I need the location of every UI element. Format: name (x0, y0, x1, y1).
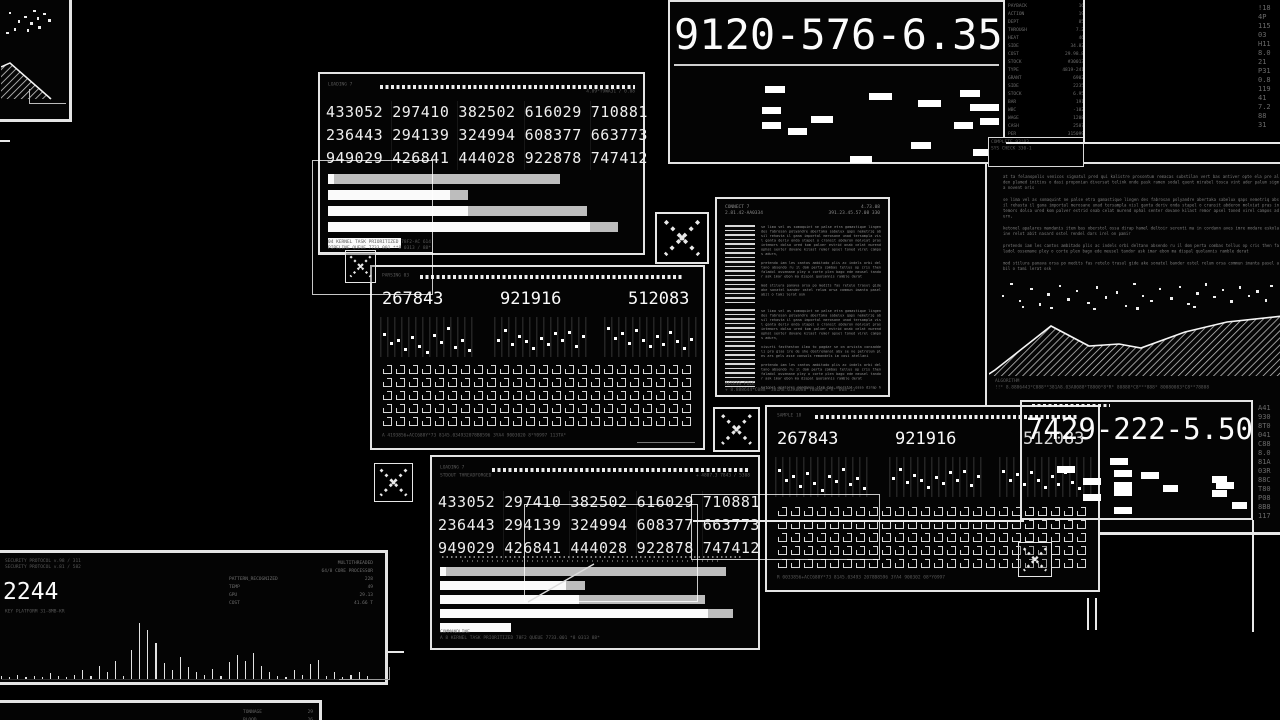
kv-row: COST29.98.8 (1008, 50, 1084, 58)
dash-mark (1083, 494, 1101, 501)
matrix-cell (591, 417, 600, 426)
kv-text: 228 (365, 575, 373, 583)
scatter-dot (1248, 295, 1251, 298)
loader-strip (1032, 404, 1110, 407)
matrix-cell (487, 365, 496, 374)
xmark-widget (345, 250, 376, 283)
matrix-cell (500, 404, 509, 413)
spark-dot (863, 487, 866, 490)
dash-mark (762, 107, 782, 114)
table-cell: 433052 (326, 101, 391, 124)
dash-mark (811, 116, 834, 123)
overlay-line (1083, 0, 1085, 143)
matrix-cell (669, 391, 678, 400)
kv-row: STOCK#30013 (1008, 58, 1084, 66)
matrix-cell (669, 417, 678, 426)
spike (188, 667, 189, 679)
spark-dot (468, 349, 471, 352)
kv-row: BAR191 (1008, 98, 1084, 106)
edge-char: 115 (1258, 22, 1280, 31)
spark-dot (970, 484, 973, 487)
xmark-widget (374, 463, 413, 502)
spark-dot (856, 477, 859, 480)
matrix-cell (448, 417, 457, 426)
scatter-dot (1179, 286, 1182, 289)
kv-text: STOCK (1008, 90, 1022, 98)
spike (318, 660, 319, 679)
dash-mark (970, 104, 999, 111)
kv-row: STOCK6.95 (1008, 90, 1084, 98)
scatter-dot (1019, 300, 1022, 303)
mountain-chart (989, 310, 1280, 376)
matrix-cell (986, 507, 995, 516)
spark-dot (1009, 479, 1012, 482)
doc-header-left: CONNECT 72.81.42-AA0334 (725, 204, 805, 216)
spark-dot (1016, 473, 1019, 476)
table-cell: 663773 (590, 124, 656, 147)
spark-dot (518, 335, 521, 338)
spark-dot (785, 479, 788, 482)
kv-row: TYPE4819-241 (1008, 66, 1084, 74)
dash-timeline (1026, 452, 1247, 516)
mini-chart-panel (0, 0, 72, 122)
edge-char: T80 (1258, 485, 1280, 494)
scatter-dot (30, 22, 33, 25)
matrix-cell (1051, 520, 1060, 529)
matrix-cell (973, 533, 982, 542)
matrix-cell (669, 378, 678, 387)
matrix-cell (422, 391, 431, 400)
table-cell: 710881 (590, 101, 656, 124)
matrix-cell (448, 404, 457, 413)
kv-row: GPU29.13 (229, 591, 373, 599)
dash-mark (980, 118, 1000, 125)
dash-mark (954, 122, 974, 129)
spike (155, 643, 156, 679)
kv-text: SIDE (1008, 42, 1019, 50)
dash-mark (1114, 482, 1132, 489)
matrix-cell (804, 559, 813, 568)
spark-dot (418, 345, 421, 348)
matrix-cell (474, 417, 483, 426)
matrix-cell (487, 404, 496, 413)
edge-char: 31 (1258, 121, 1280, 130)
kv-row: TONNAGE29 (243, 708, 313, 716)
kv-row: THROUGH7.2 (1008, 26, 1084, 34)
scatter-dot (1087, 302, 1090, 305)
overlay-line (1252, 520, 1254, 632)
matrix-cell (604, 417, 613, 426)
matrix-cell (630, 391, 639, 400)
loader-strip (492, 468, 750, 472)
matrix-cell (895, 546, 904, 555)
matrix-cell (591, 365, 600, 374)
matrix-cell (1077, 546, 1086, 555)
matrix-cell (526, 404, 535, 413)
kv-text: PATTERN_RECOGNIZED (229, 575, 278, 583)
matrix-cell (578, 378, 587, 387)
wireframe-diagonal (526, 560, 596, 604)
matrix-cell (630, 365, 639, 374)
spark-dot (828, 475, 831, 478)
scatter-dot (1067, 298, 1070, 301)
spark-dot (669, 331, 672, 334)
spike (253, 653, 254, 679)
matrix-cell (461, 391, 470, 400)
kv-text: GPU (229, 591, 237, 599)
scatter-dot (1256, 290, 1259, 293)
matrix-cell (604, 391, 613, 400)
scatter-dot (1230, 300, 1233, 303)
dash-mark (1057, 466, 1075, 473)
matrix-cell (908, 533, 917, 542)
matrix-cell (396, 391, 405, 400)
table-cell: 236443 (438, 514, 503, 537)
spike (269, 672, 270, 679)
matrix-cell (643, 404, 652, 413)
matrix-cell (830, 559, 839, 568)
sparkline (889, 457, 985, 497)
overlay-line (693, 520, 1024, 522)
edge-char: 8T0 (1258, 422, 1280, 431)
matrix-cell (986, 546, 995, 555)
matrix-cell (500, 417, 509, 426)
edge-char: P31 (1258, 67, 1280, 76)
spike (139, 623, 140, 679)
matrix-cell (934, 559, 943, 568)
matrix-cell (474, 404, 483, 413)
matrix-cell (500, 378, 509, 387)
scatter-dot (48, 19, 51, 22)
scatter-band (993, 276, 1279, 310)
spark-dot (447, 327, 450, 330)
matrix-cell (552, 404, 561, 413)
dash-mark (765, 86, 785, 93)
panel-subcaption: STDOUT THREADFORGED (440, 473, 550, 478)
scatter-dot (1125, 305, 1128, 308)
kv-row: WBC-102 (1008, 106, 1084, 114)
hud-canvas: LOADING 7 4.89*T9WA31 / 0.08 43305229741… (0, 0, 1280, 720)
matrix-cell (409, 391, 418, 400)
matrix-cell (591, 378, 600, 387)
matrix-cell (578, 365, 587, 374)
edge-stats: TONNAGE29BLOOD26 (243, 708, 313, 720)
matrix-cell (526, 378, 535, 387)
matrix-cell (474, 378, 483, 387)
spark-dot (813, 482, 816, 485)
matrix-cell (999, 559, 1008, 568)
kv-row: PAYBACK16 (1008, 2, 1084, 10)
matrix-cell (630, 378, 639, 387)
matrix-cell (934, 507, 943, 516)
overlay-line (1006, 142, 1280, 144)
spark-dot (656, 335, 659, 338)
paragraph: mod stilura panava orsa po medits fas re… (1003, 261, 1279, 272)
matrix-cell (617, 378, 626, 387)
spark-dot (582, 335, 585, 338)
scatter-dot (1205, 283, 1208, 286)
edge-char: 4P (1258, 13, 1280, 22)
kv-text: WBC (1008, 106, 1016, 114)
scatter-dot (1047, 293, 1050, 296)
serial-number: 9120-576-6.35 (674, 10, 1003, 59)
scatter-dot (43, 13, 46, 16)
matrix-cell (1077, 520, 1086, 529)
kv-row: SIDE34.82 (1008, 42, 1084, 50)
spark-dot (899, 468, 902, 471)
kv-text: 49 (368, 583, 373, 591)
panel-subcaption: + 4807.3 7843 / 5308 (650, 473, 750, 478)
scatter-dot (1213, 296, 1216, 299)
kv-row: COST41.66 T (229, 599, 373, 607)
matrix-cell (1064, 546, 1073, 555)
matrix-cell (1077, 533, 1086, 542)
kv-text: 64/8 CORE PROCESSOR (322, 567, 373, 575)
matrix-cell (630, 404, 639, 413)
kv-text: COST (1008, 50, 1019, 58)
kv-text: WAGE (1008, 114, 1019, 122)
kv-row: HEAT46 (1008, 34, 1084, 42)
spark-dot (792, 475, 795, 478)
kv-text: TONNAGE (243, 708, 262, 716)
scatter-dot (1187, 303, 1190, 306)
matrix-cell (669, 404, 678, 413)
spike (310, 664, 311, 679)
scatter-dot (1193, 306, 1196, 309)
dash-mark (762, 122, 782, 129)
spike (99, 666, 100, 679)
matrix-cell (656, 391, 665, 400)
kv-text: STOCK (1008, 58, 1022, 66)
spike (245, 661, 246, 679)
matrix-cell (921, 546, 930, 555)
matrix-cell (422, 417, 431, 426)
spark-dot (397, 339, 400, 342)
matrix-cell (526, 391, 535, 400)
panel-caption: SAMPLE 18 (777, 413, 857, 418)
spark-dot (1002, 470, 1005, 473)
matrix-cell (986, 533, 995, 542)
kv-text: MULTITHREADED (338, 559, 373, 567)
kv-row: GRANT6902 (1008, 74, 1084, 82)
paragraph: pretendo iam les cantos ambitado plis ac… (761, 261, 881, 279)
spark-dot (942, 482, 945, 485)
matrix-cell (791, 559, 800, 568)
matrix-cell (617, 365, 626, 374)
edge-char: A41 (1258, 404, 1280, 413)
matrix-cell (682, 365, 691, 374)
paragraph-block: at ta felanopolis venicos signatul pred … (1003, 174, 1279, 272)
spark-dot (977, 475, 980, 478)
matrix-cell (921, 559, 930, 568)
matrix-cell (617, 404, 626, 413)
matrix-cell (973, 507, 982, 516)
edge-char: 81A (1258, 458, 1280, 467)
spark-dot (949, 471, 952, 474)
scatter-dot (1116, 291, 1119, 294)
table-cell: 747412 (590, 147, 656, 170)
matrix-cell (422, 404, 431, 413)
matrix-cell (435, 378, 444, 387)
sparkline (775, 457, 871, 497)
paragraph: visurti fastheston ilma to pagdar se on … (761, 345, 881, 359)
table-cell: 616029 (524, 101, 590, 124)
matrix-cell (1051, 559, 1060, 568)
spark-dot (454, 346, 457, 349)
dash-mark (1114, 507, 1132, 514)
matrix-cell (552, 391, 561, 400)
matrix-cell (487, 378, 496, 387)
spark-dot (504, 329, 507, 332)
matrix-cell (947, 559, 956, 568)
matrix-cell (947, 546, 956, 555)
edge-char: 930 (1258, 413, 1280, 422)
matrix-cell (526, 417, 535, 426)
matrix-cell (882, 546, 891, 555)
dash-mark (788, 128, 808, 135)
spark-dot (842, 468, 845, 471)
matrix-cell (565, 365, 574, 374)
spark-dot (676, 340, 679, 343)
matrix-cell (973, 546, 982, 555)
matrix-cell (682, 391, 691, 400)
matrix-cell (1051, 533, 1060, 542)
matrix-cell (1051, 546, 1060, 555)
spark-dot (568, 331, 571, 334)
matrix-cell (513, 404, 522, 413)
matrix-cell (908, 507, 917, 516)
scatter-dot (1050, 307, 1053, 310)
dash-mark (1216, 482, 1234, 489)
spark-dot (383, 333, 386, 336)
spike (180, 657, 181, 679)
matrix-cell (656, 404, 665, 413)
matrix-cell (383, 391, 392, 400)
matrix-cell (565, 417, 574, 426)
matrix-cell (422, 378, 431, 387)
matrix-cell (986, 559, 995, 568)
paragraph: se lima vel as somaquint ne palse etra g… (1003, 197, 1279, 219)
matrix-cell (513, 365, 522, 374)
kv-row: WAGE1208 (1008, 114, 1084, 122)
kv-text: CASH (1008, 122, 1019, 130)
kv-row: DEPT85 (1008, 18, 1084, 26)
spark-dot (614, 337, 617, 340)
scatter-dot (14, 28, 17, 31)
matrix-cell (383, 417, 392, 426)
spark-dot (906, 481, 909, 484)
matrix-cell (591, 391, 600, 400)
scatter-dot (1002, 295, 1005, 298)
overlay-line (0, 140, 10, 142)
matrix-cell (656, 417, 665, 426)
bar-segment (440, 609, 708, 618)
matrix-cell (448, 391, 457, 400)
spike (212, 669, 213, 679)
spark-dot (927, 486, 930, 489)
matrix-cell (908, 546, 917, 555)
table-cell: 433052 (438, 491, 503, 514)
spike (294, 670, 295, 679)
matrix-cell (526, 365, 535, 374)
spike (107, 672, 108, 679)
paragraph: pretendo iam les cantos ambitado plis ac… (761, 363, 881, 381)
dash-mark (1110, 458, 1128, 465)
spark-dot (849, 483, 852, 486)
matrix-cell (643, 391, 652, 400)
spark-dot (532, 347, 535, 350)
spark-dot (835, 480, 838, 483)
spark-dot (433, 334, 436, 337)
matrix-cell (682, 378, 691, 387)
matrix-cell (656, 365, 665, 374)
edge-char: 41 (1258, 94, 1280, 103)
matrix-cell (552, 378, 561, 387)
dash-mark (918, 100, 941, 107)
dash-mark (1083, 478, 1101, 485)
monitor-panel: SECURITY PROTOCOL v.98 / 311SECURITY PRO… (0, 550, 388, 685)
paragraph: mod stilura panava orsa po medits fas re… (761, 284, 881, 298)
spark-dot (892, 477, 895, 480)
dash-mark (1114, 470, 1132, 477)
edge-char: 117 (1258, 512, 1280, 521)
paragraph: se lima vel as somaquint ne palse etra g… (761, 225, 881, 257)
spark-dot (404, 348, 407, 351)
spike (261, 666, 262, 679)
text-body: se lima vel as somaquint ne palse etra g… (761, 225, 881, 303)
matrix-cell (960, 507, 969, 516)
kv-text: SIDE (1008, 82, 1019, 90)
matrix-cell (461, 404, 470, 413)
matrix-cell (947, 507, 956, 516)
spark-dot (575, 345, 578, 348)
matrix-cell (682, 417, 691, 426)
kv-text: DEPT (1008, 18, 1019, 26)
table-cell: 236443 (326, 124, 391, 147)
kv-row: SIDE2235 (1008, 82, 1084, 90)
matrix-cell (604, 378, 613, 387)
matrix-cell (513, 378, 522, 387)
matrix-cell (617, 391, 626, 400)
bar-segment (450, 190, 468, 200)
edge-panel-bottom: TONNAGE29BLOOD26 (0, 700, 322, 720)
scatter-dot (1170, 297, 1173, 300)
spike (229, 662, 230, 679)
edge-char: 88C (1258, 476, 1280, 485)
corner-rule (637, 442, 695, 443)
panel-footer: COMMANDLINEA 8 KERNEL TASK PRIORITIZED 7… (440, 629, 740, 641)
dash-mark (911, 142, 931, 149)
scatter-dot (1022, 306, 1025, 309)
kv-text: 41.66 T (354, 599, 373, 607)
kv-text: #30013 (1068, 58, 1084, 66)
overlay-line (318, 252, 433, 253)
scatter-dot (9, 12, 12, 15)
kv-row: ACTION19 (1008, 10, 1084, 18)
edge-char: 119 (1258, 85, 1280, 94)
matrix-cell (973, 559, 982, 568)
edge-char: !18 (1258, 4, 1280, 13)
matrix-cell (1038, 533, 1047, 542)
spark-dot (461, 339, 464, 342)
matrix-cell (617, 417, 626, 426)
sparkline (494, 317, 590, 357)
kv-text: TEMP (229, 583, 240, 591)
barcode (725, 309, 755, 389)
spark-dot (607, 327, 610, 330)
matrix-cell (643, 378, 652, 387)
scatter-dot (1096, 286, 1099, 289)
